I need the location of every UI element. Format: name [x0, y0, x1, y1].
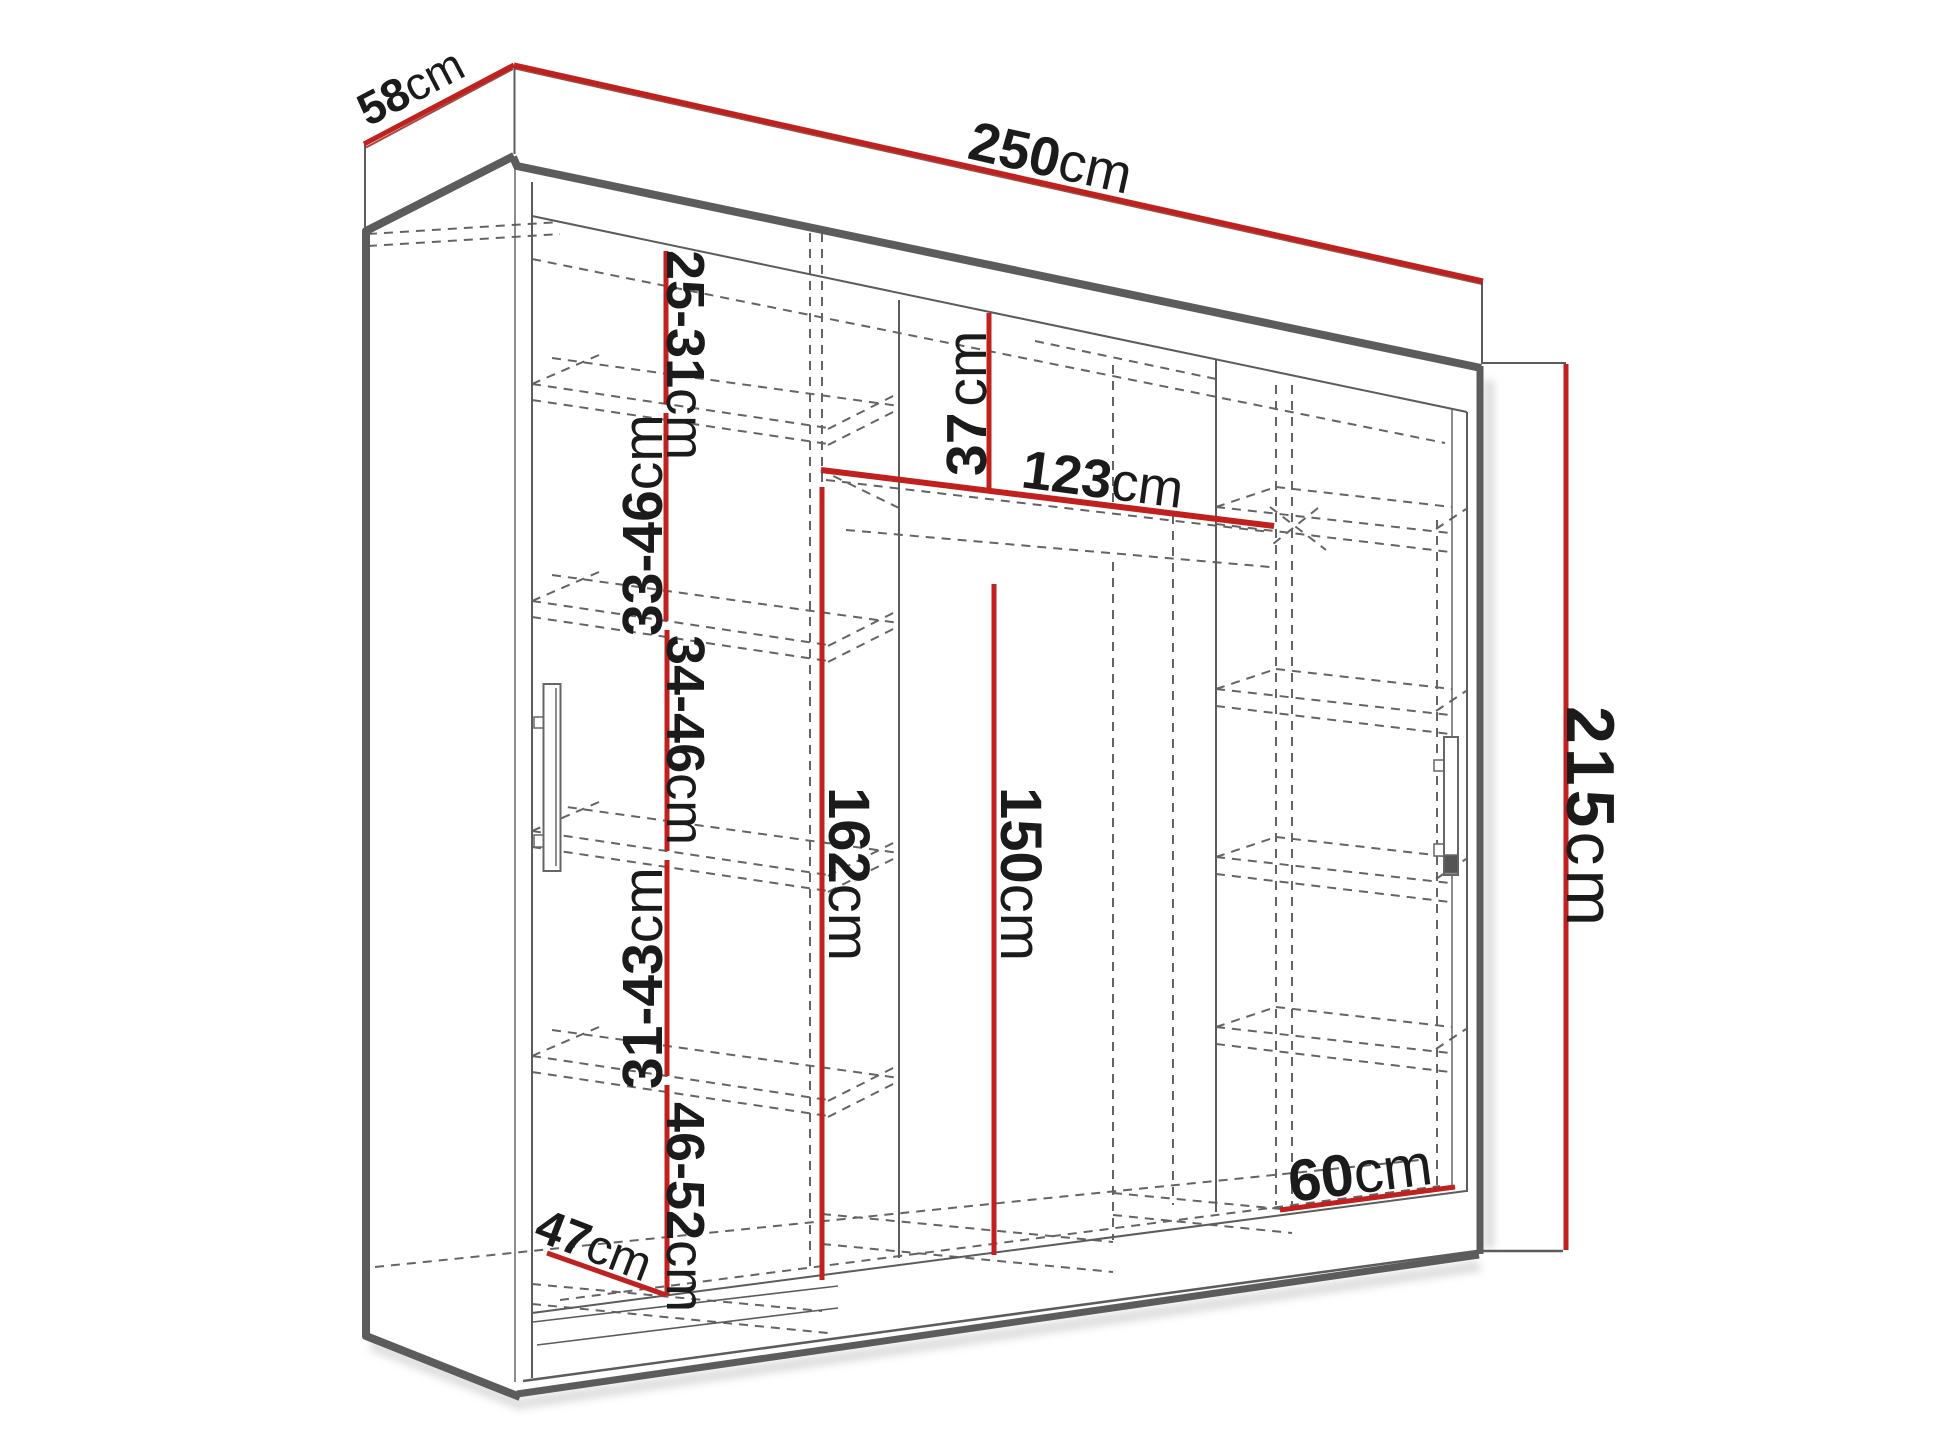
svg-text:162cm: 162cm — [816, 787, 881, 961]
svg-text:34-46cm: 34-46cm — [655, 635, 715, 845]
svg-text:215cm: 215cm — [1552, 706, 1628, 930]
svg-text:46-52cm: 46-52cm — [655, 1102, 715, 1312]
svg-text:31-43cm: 31-43cm — [611, 867, 675, 1089]
svg-text:150cm: 150cm — [988, 787, 1053, 961]
svg-text:37cm: 37cm — [935, 331, 999, 476]
svg-text:33-46cm: 33-46cm — [611, 414, 675, 636]
